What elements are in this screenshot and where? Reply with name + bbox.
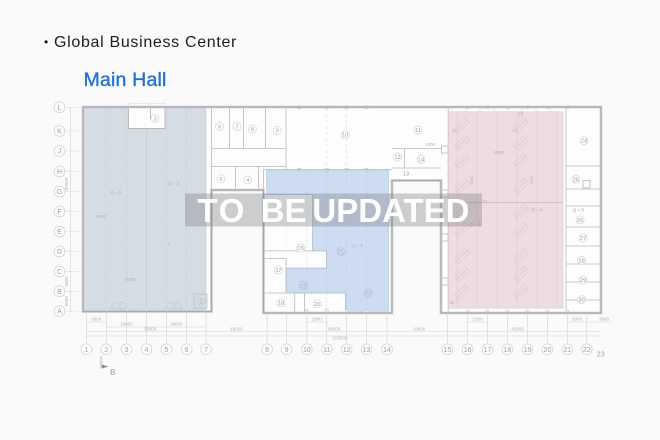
svg-text:15: 15 bbox=[298, 246, 304, 252]
svg-text:14: 14 bbox=[418, 158, 424, 164]
svg-text:10: 10 bbox=[303, 347, 311, 354]
svg-text:20: 20 bbox=[544, 347, 552, 354]
svg-text:18000: 18000 bbox=[170, 322, 183, 327]
svg-text:J: J bbox=[58, 149, 62, 156]
svg-text:K: K bbox=[57, 129, 62, 136]
svg-text:5: 5 bbox=[164, 347, 168, 354]
svg-text:2000: 2000 bbox=[96, 214, 107, 219]
svg-text:B: B bbox=[110, 368, 115, 377]
svg-text:Q = 3: Q = 3 bbox=[110, 190, 122, 195]
svg-text:1: 1 bbox=[200, 300, 203, 306]
svg-text:1000: 1000 bbox=[425, 142, 436, 147]
svg-text:11: 11 bbox=[415, 128, 421, 134]
svg-text:21: 21 bbox=[338, 250, 344, 256]
svg-text:6: 6 bbox=[185, 347, 189, 354]
svg-text:6000: 6000 bbox=[529, 175, 534, 185]
svg-text:60000: 60000 bbox=[64, 177, 69, 190]
svg-text:6000: 6000 bbox=[125, 277, 136, 282]
svg-text:13: 13 bbox=[363, 347, 371, 354]
svg-text:22: 22 bbox=[365, 291, 371, 297]
svg-text:Q = 3: Q = 3 bbox=[351, 243, 363, 248]
svg-text:16: 16 bbox=[464, 347, 472, 354]
svg-text:3: 3 bbox=[153, 116, 156, 122]
svg-text:23: 23 bbox=[518, 112, 524, 117]
svg-text:8: 8 bbox=[251, 127, 254, 133]
svg-text:19: 19 bbox=[524, 347, 532, 354]
svg-text:29: 29 bbox=[580, 278, 586, 284]
svg-text:2000: 2000 bbox=[312, 317, 323, 322]
svg-text:B: B bbox=[57, 289, 62, 296]
svg-text:2: 2 bbox=[104, 347, 108, 354]
svg-text:22: 22 bbox=[583, 347, 591, 354]
svg-text:17: 17 bbox=[484, 347, 492, 354]
svg-text:24: 24 bbox=[581, 139, 587, 145]
svg-text:4: 4 bbox=[246, 178, 249, 184]
svg-text:G: G bbox=[57, 189, 62, 196]
svg-text:6: 6 bbox=[218, 124, 221, 130]
svg-text:17: 17 bbox=[275, 268, 281, 274]
svg-text:30: 30 bbox=[579, 298, 585, 304]
svg-text:15: 15 bbox=[444, 347, 452, 354]
svg-text:18: 18 bbox=[504, 347, 512, 354]
svg-text:27: 27 bbox=[580, 236, 586, 242]
svg-text:3: 3 bbox=[125, 347, 129, 354]
svg-text:5: 5 bbox=[219, 177, 222, 183]
svg-text:36000: 36000 bbox=[328, 326, 341, 331]
svg-text:25: 25 bbox=[573, 177, 579, 183]
svg-text:4: 4 bbox=[145, 347, 149, 354]
svg-text:20: 20 bbox=[314, 302, 320, 308]
svg-text:9: 9 bbox=[285, 347, 289, 354]
svg-text:14: 14 bbox=[383, 347, 391, 354]
svg-text:11: 11 bbox=[323, 347, 330, 354]
svg-text:9: 9 bbox=[276, 129, 279, 135]
svg-text:Q = 3: Q = 3 bbox=[168, 181, 180, 186]
svg-text:45000: 45000 bbox=[511, 326, 524, 331]
svg-text:8: 8 bbox=[265, 347, 269, 354]
svg-text:12: 12 bbox=[394, 155, 400, 161]
svg-text:6000: 6000 bbox=[64, 276, 69, 287]
svg-text:7: 7 bbox=[204, 347, 208, 354]
svg-text:13: 13 bbox=[403, 172, 409, 178]
svg-text:153600: 153600 bbox=[332, 336, 348, 341]
svg-text:6000: 6000 bbox=[91, 317, 102, 322]
svg-text:7: 7 bbox=[235, 124, 238, 130]
svg-text:1900: 1900 bbox=[493, 150, 504, 155]
svg-text:18: 18 bbox=[278, 301, 284, 307]
svg-text:1: 1 bbox=[84, 347, 88, 354]
svg-text:12: 12 bbox=[343, 347, 351, 354]
svg-text:32: 32 bbox=[449, 300, 455, 305]
svg-text:3000: 3000 bbox=[599, 317, 610, 322]
svg-text:18400: 18400 bbox=[413, 326, 426, 331]
svg-text:31: 31 bbox=[483, 199, 489, 204]
svg-text:C: C bbox=[57, 269, 62, 276]
svg-text:23: 23 bbox=[597, 352, 605, 359]
svg-text:18000: 18000 bbox=[230, 326, 243, 331]
svg-text:28: 28 bbox=[579, 258, 585, 264]
svg-text:26: 26 bbox=[577, 218, 583, 224]
svg-text:10: 10 bbox=[342, 133, 348, 139]
svg-text:E: E bbox=[57, 229, 62, 236]
svg-text:F: F bbox=[57, 209, 61, 216]
svg-text:1000: 1000 bbox=[472, 317, 483, 322]
svg-text:L: L bbox=[58, 105, 62, 112]
svg-text:TOBEUPDATED: TOBEUPDATED bbox=[197, 192, 469, 229]
svg-text:19: 19 bbox=[300, 283, 306, 289]
svg-text:6000: 6000 bbox=[572, 317, 583, 322]
svg-text:Q = 3: Q = 3 bbox=[573, 208, 585, 213]
svg-text:18000: 18000 bbox=[120, 322, 133, 327]
svg-text:H: H bbox=[57, 169, 62, 176]
svg-text:21: 21 bbox=[563, 347, 571, 354]
svg-text:A: A bbox=[57, 309, 62, 316]
svg-text:36000: 36000 bbox=[144, 326, 157, 331]
svg-text:6000: 6000 bbox=[64, 296, 69, 307]
svg-text:D: D bbox=[57, 249, 62, 256]
